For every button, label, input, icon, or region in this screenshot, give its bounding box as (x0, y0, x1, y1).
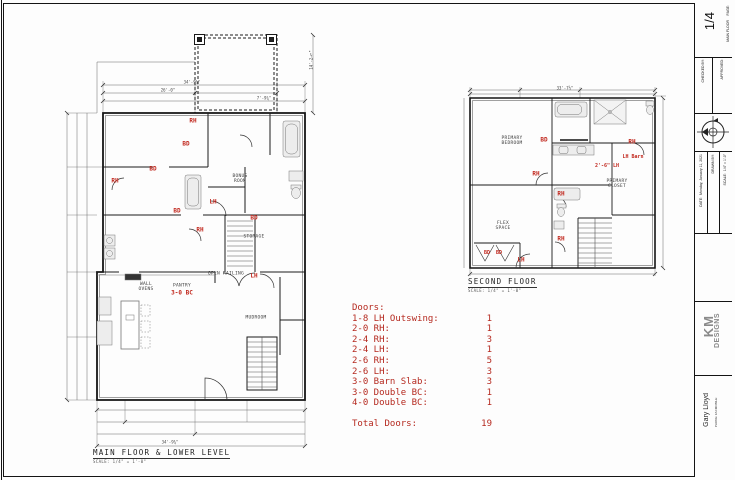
door-label: BD (182, 141, 189, 148)
door-label: BD (173, 208, 180, 215)
author-name: Gary Lloyd (703, 393, 710, 427)
door-schedule-row: 3-0 Double BC:1 (352, 388, 492, 399)
second-plan-title: SECOND FLOOR (468, 277, 537, 288)
door-schedule-total: Total Doors:19 (352, 419, 492, 430)
sheet-edge (1, 0, 2, 480)
dimension-label: 33'-7½" (557, 86, 574, 91)
door-label: LH Barn (622, 154, 643, 160)
title-block-north-section (695, 113, 732, 152)
door-type: 2-6 LH: (352, 367, 390, 378)
door-label: RH (111, 178, 118, 185)
door-label: LH (250, 273, 257, 280)
door-schedule: Doors: 1-8 LH Outswing:1 2-0 RH:1 2-4 RH… (352, 303, 492, 430)
main-plan-title: MAIN FLOOR & LOWER LEVEL (93, 448, 230, 459)
door-type: 4-0 Double BC: (352, 398, 428, 409)
room-label: OPEN RAILING (201, 272, 251, 277)
door-schedule-row: 4-0 Double BC:1 (352, 398, 492, 409)
door-type: 2-6 RH: (352, 356, 390, 367)
room-label: BONUS ROOM (227, 174, 253, 184)
door-label: RH (532, 171, 539, 178)
scale-label: SCALE: 1/4" = 1'-0" (723, 154, 727, 185)
approved-label: APPROVED: (720, 59, 724, 79)
approved-cell: APPROVED: (714, 57, 732, 113)
door-label: BD (149, 166, 156, 173)
dimension-label: 7'-9¾" (257, 96, 271, 101)
compass-north-icon (695, 113, 732, 151)
door-count: 1 (487, 324, 492, 335)
scale-cell: SCALE: 1/4" = 1'-0" (719, 151, 732, 233)
door-label: RH (189, 118, 196, 125)
door-label: BD (496, 250, 502, 256)
door-label: BD (540, 137, 547, 144)
door-label: BD (484, 250, 490, 256)
sheet-name: MAIN FLOOR (726, 20, 730, 42)
door-count: 5 (487, 356, 492, 367)
door-schedule-row: 2-4 LH:1 (352, 345, 492, 356)
door-count: 3 (487, 377, 492, 388)
room-label: MUDROOM (238, 316, 274, 321)
door-count: 3 (487, 335, 492, 346)
title-block-author-section: Gary Lloyd PHONE: FAX: MOBILE: (695, 375, 732, 476)
room-label: WALL OVENS (136, 282, 156, 292)
checked-by-label: CHECKED BY: (701, 59, 705, 83)
door-count: 3 (487, 367, 492, 378)
checked-by-cell: CHECKED BY: (695, 57, 713, 113)
floor-plan-second (460, 85, 670, 280)
title-block-logo-section: KM DESIGNS (695, 301, 732, 376)
door-label: 3-0 BC (171, 290, 193, 297)
title-block-approvals: CHECKED BY: APPROVED: (695, 57, 732, 114)
door-count: 1 (487, 398, 492, 409)
title-block-info-section: SCALE: 1/4" = 1'-0" DRAWN BY: DATE: Mond… (695, 151, 732, 234)
logo-designs: DESIGNS (714, 313, 721, 348)
deck-posts (195, 35, 277, 45)
door-count: 1 (487, 345, 492, 356)
door-label: RH (557, 191, 564, 198)
date-cell: DATE: Monday, January 11, 2021 (695, 151, 708, 233)
door-label: RH (557, 236, 564, 243)
door-schedule-row: 1-8 LH Outswing:1 (352, 314, 492, 325)
door-type: 3-0 Barn Slab: (352, 377, 428, 388)
door-schedule-row: 3-0 Barn Slab:3 (352, 377, 492, 388)
title-block-page-section: PAGE: MAIN FLOOR 1/4 (695, 3, 732, 58)
stairs-second (578, 218, 612, 268)
door-schedule-heading: Doors: (352, 303, 492, 314)
door-label: RH (196, 227, 203, 234)
main-plan-scale: SCALE: 1/4" = 1'-0" (93, 459, 146, 464)
dimension-label: 34'-9¾" (162, 440, 179, 445)
drawing-sheet: RH BD BD RH LH BD RH BD LH 3-0 BC BONUS … (0, 0, 735, 480)
door-schedule-row: 2-0 RH:1 (352, 324, 492, 335)
door-type: 2-4 LH: (352, 345, 390, 356)
door-type: 3-0 Double BC: (352, 388, 428, 399)
door-schedule-row: 2-6 RH:5 (352, 356, 492, 367)
page-number: 1/4 (702, 12, 717, 30)
door-count: 1 (487, 314, 492, 325)
phone-label: PHONE: (714, 416, 718, 428)
dimension-label: 34'-9¾" (184, 80, 201, 85)
door-label: RH (628, 139, 635, 146)
room-label: PANTRY (167, 284, 197, 289)
door-type: 2-4 RH: (352, 335, 390, 346)
deck-outline (195, 35, 277, 113)
floor-plan-main (55, 25, 325, 455)
title-block: PAGE: MAIN FLOOR 1/4 CHECKED BY: APPROVE… (694, 3, 732, 477)
contact-labels: PHONE: FAX: MOBILE: (714, 397, 718, 427)
dimension-label: 14'-2½" (309, 50, 314, 69)
room-label: STORAGE (237, 235, 271, 240)
drawn-by-label: DRAWN BY: (711, 154, 715, 174)
door-type: 2-0 RH: (352, 324, 390, 335)
room-label: PRIMARY CLOSET (603, 179, 631, 189)
door-label: LH (517, 257, 524, 264)
total-count: 19 (481, 419, 492, 430)
room-label: PRIMARY BEDROOM (498, 136, 526, 146)
fax-label: FAX: (714, 409, 718, 416)
door-count: 1 (487, 388, 492, 399)
second-plan-scale: SCALE: 1/4" = 1'-0" (468, 288, 521, 293)
page-label: PAGE: (726, 5, 730, 15)
drawn-by-cell: DRAWN BY: (707, 151, 720, 233)
door-label: LH (209, 199, 216, 206)
door-schedule-row: 2-6 LH:3 (352, 367, 492, 378)
title-block-blank-section (695, 233, 732, 302)
room-label: FLEX SPACE (493, 221, 513, 231)
stairs-main (227, 221, 277, 390)
dimension-label: 26'-0" (161, 88, 175, 93)
door-type: 1-8 LH Outswing: (352, 314, 439, 325)
date-label: DATE: Monday, January 11, 2021 (699, 154, 703, 207)
total-label: Total Doors: (352, 419, 417, 430)
door-label: 2'-6" LH (595, 163, 619, 169)
door-label: BD (250, 215, 257, 222)
door-schedule-row: 2-4 RH:3 (352, 335, 492, 346)
mobile-label: MOBILE: (714, 397, 718, 409)
